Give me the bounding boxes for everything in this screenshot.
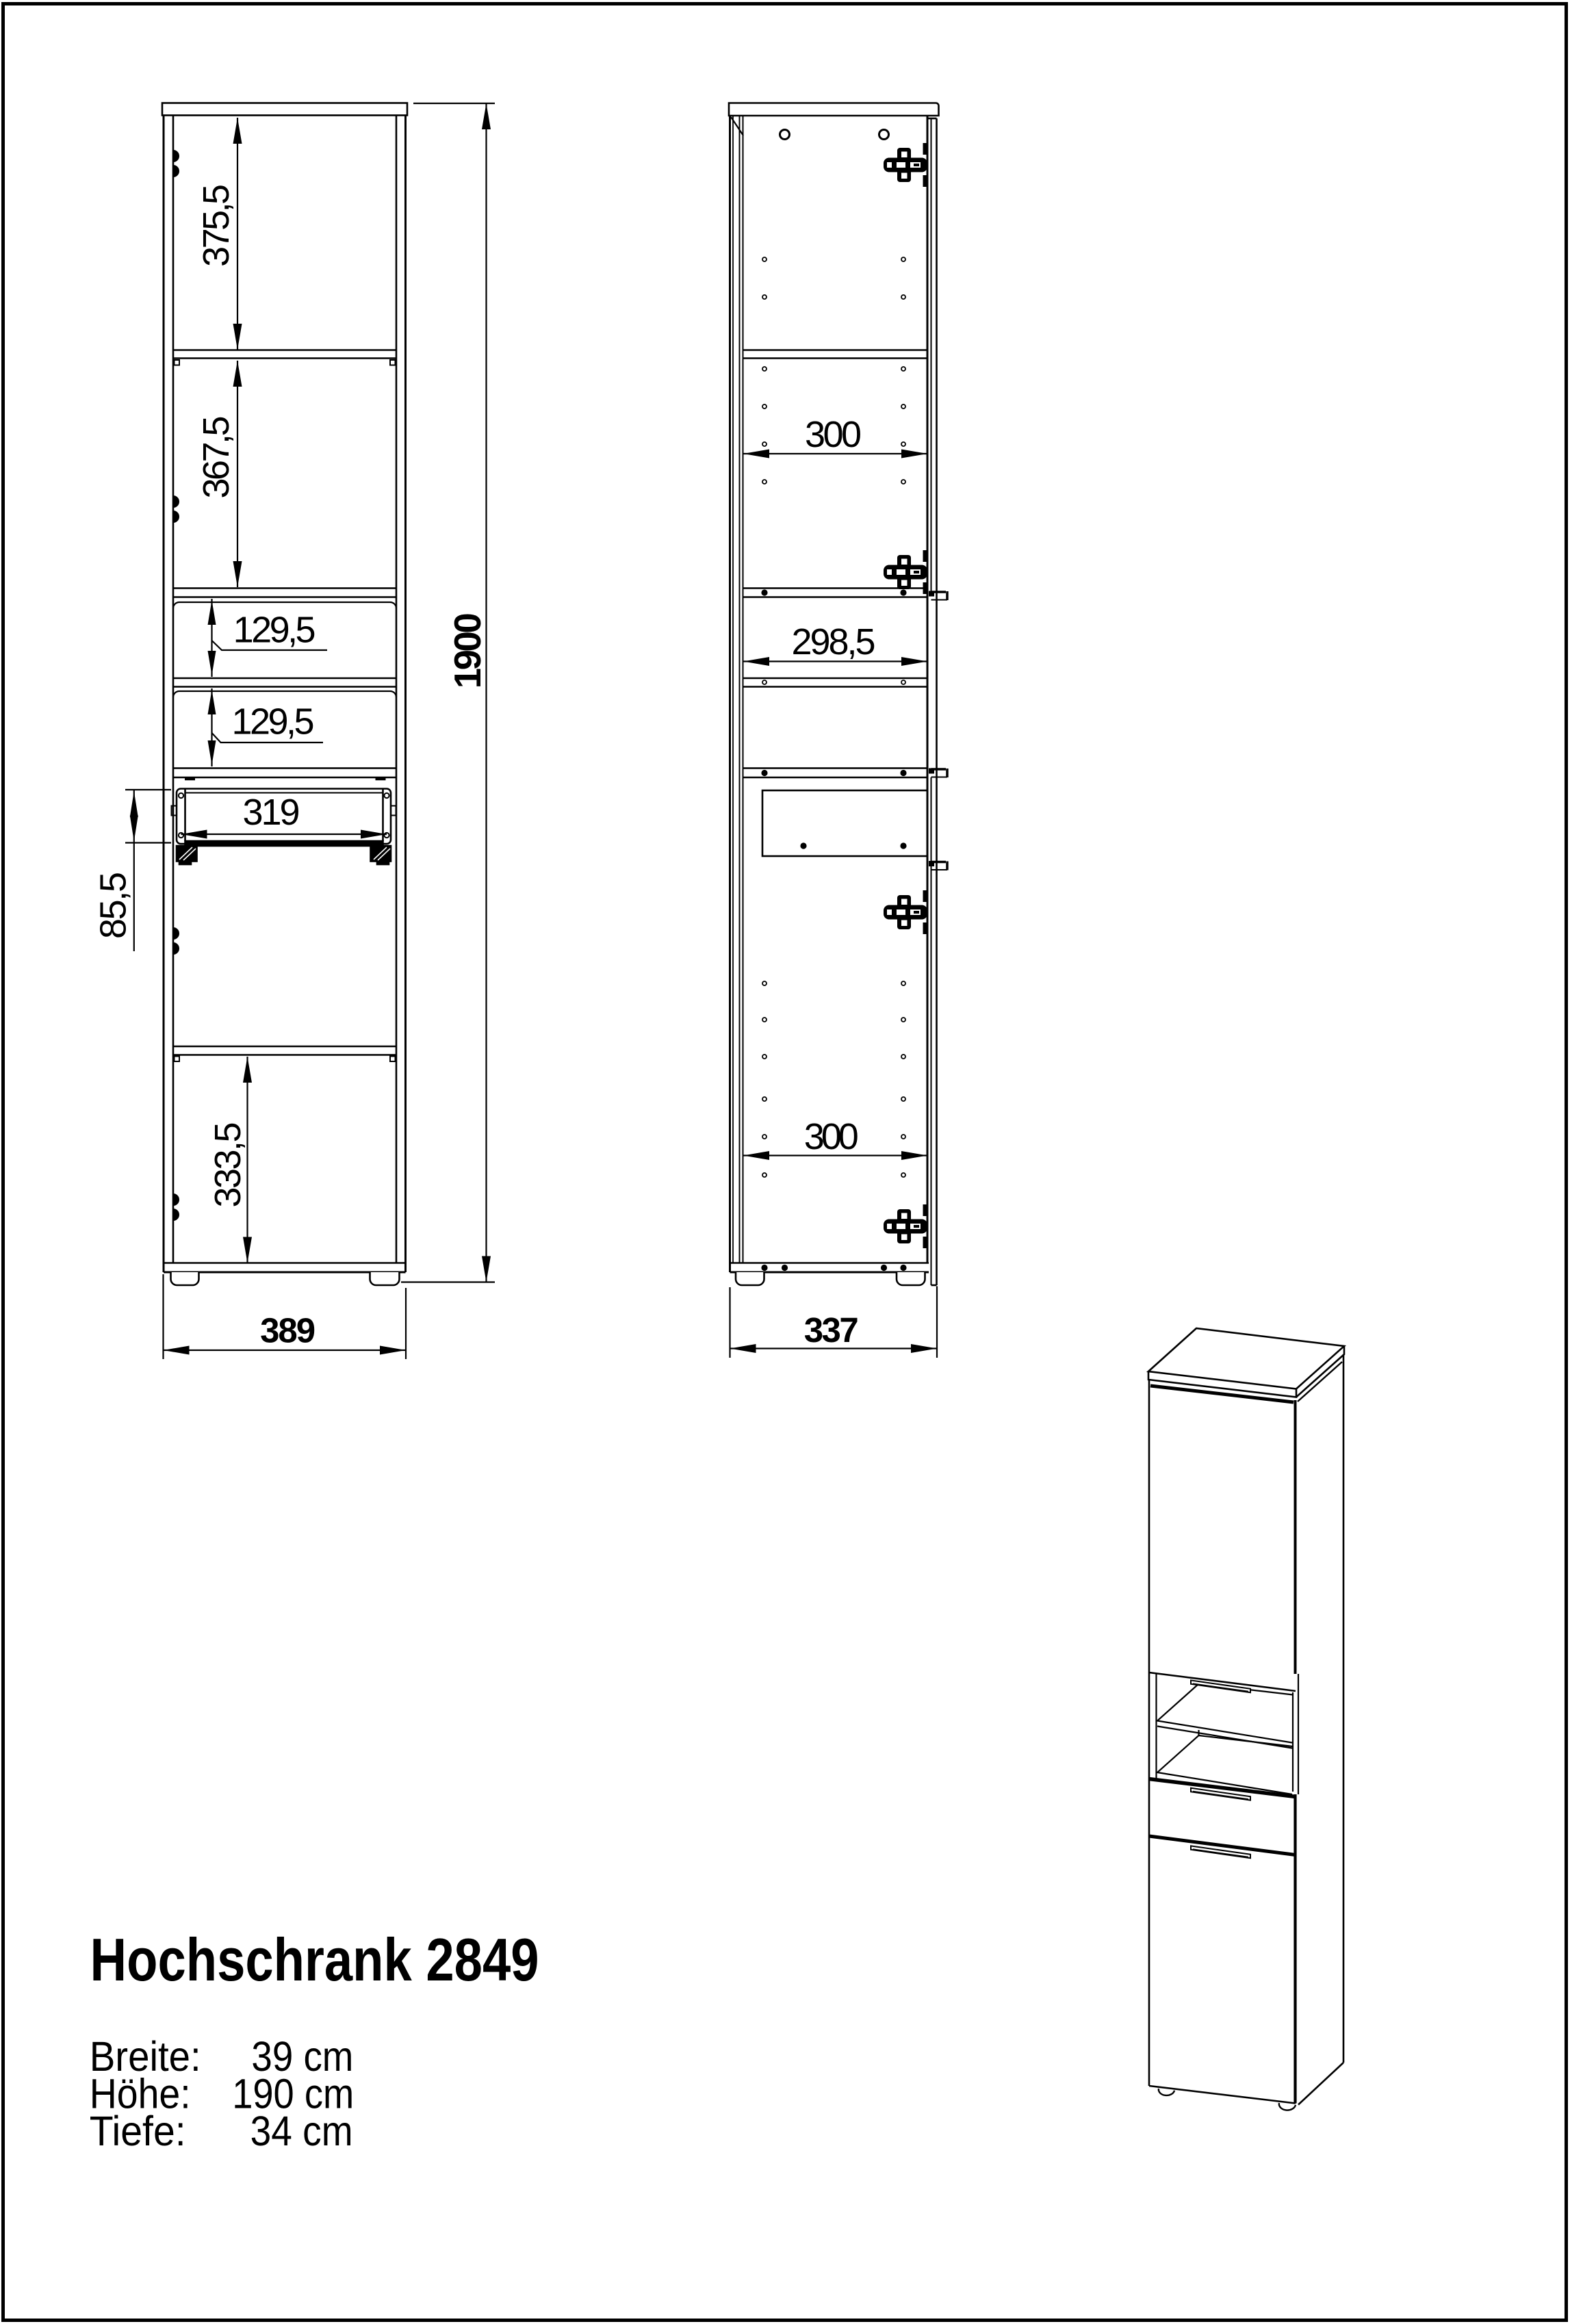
svg-text:129,5: 129,5 [232, 701, 315, 743]
svg-text:337: 337 [804, 1311, 859, 1350]
svg-text:298,5: 298,5 [792, 621, 876, 662]
svg-text:34 cm: 34 cm [250, 2108, 353, 2154]
svg-text:Tiefe:: Tiefe: [90, 2108, 186, 2154]
svg-text:319: 319 [243, 792, 300, 833]
svg-text:367,5: 367,5 [196, 416, 237, 499]
svg-text:Hochschrank 2849: Hochschrank 2849 [90, 1926, 539, 1993]
svg-text:300: 300 [804, 1116, 859, 1157]
svg-text:129,5: 129,5 [233, 610, 316, 651]
svg-text:333,5: 333,5 [207, 1122, 248, 1208]
svg-text:300: 300 [805, 414, 862, 455]
svg-text:1900: 1900 [447, 612, 489, 688]
svg-text:375,5: 375,5 [196, 184, 237, 267]
svg-text:85,5: 85,5 [93, 872, 134, 939]
svg-text:389: 389 [260, 1311, 316, 1350]
